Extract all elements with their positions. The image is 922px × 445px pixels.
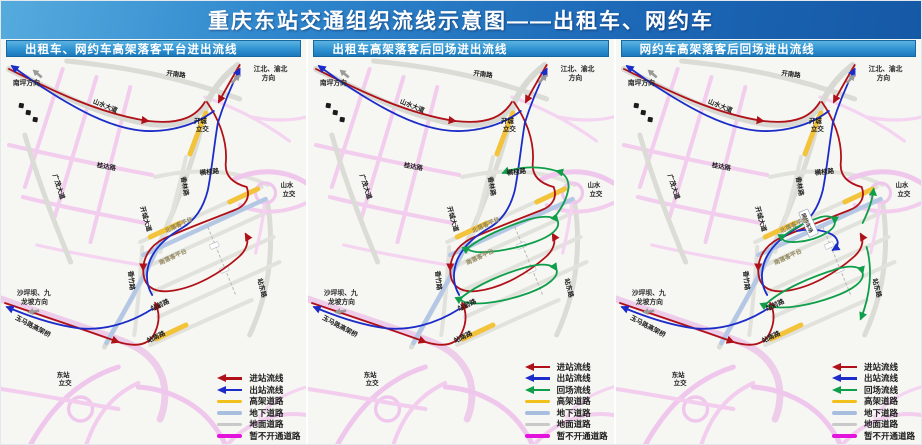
legend-label: 进站流线 (864, 362, 898, 372)
legend-label: 出站流线 (557, 373, 591, 383)
panel-2-title: 出租车高架落客后回场进出流线 (314, 41, 507, 57)
legend-item-outbound: 出站流线 (216, 385, 300, 396)
legend-label: 进站流线 (557, 362, 591, 372)
return-arrow-swatch (831, 385, 859, 394)
legend-item-return: 回场流线 (831, 385, 915, 396)
ground-road-swatch (216, 420, 244, 429)
ground-road-swatch (831, 420, 859, 429)
closed-road-swatch (524, 431, 552, 440)
legend-label: 进站流线 (249, 373, 283, 383)
legend-item-closed: 暂不开通道路 (216, 431, 300, 442)
legend-item-inbound: 进站流线 (524, 362, 608, 373)
underground-road-swatch (524, 408, 552, 417)
panel-taxi-return: 出租车高架落客后回场进出流线 (308, 39, 613, 444)
underground-road-swatch (216, 408, 244, 417)
legend-panel-3: 进站流线 出站流线 回场流线 高架道路 地下道路 (831, 362, 915, 442)
legend-item-ground: 地面道路 (216, 419, 300, 430)
legend-label: 回场流线 (864, 385, 898, 395)
closed-road-swatch (831, 431, 859, 440)
closed-road-swatch (216, 431, 244, 440)
underground-road-swatch (831, 408, 859, 417)
legend-label: 地面道路 (557, 419, 591, 429)
legend-item-outbound: 出站流线 (831, 373, 915, 384)
legend-item-elevated: 高架道路 (216, 396, 300, 407)
legend-label: 暂不开通道路 (557, 431, 608, 441)
inbound-arrow-swatch (216, 374, 244, 383)
panels-row: 出租车、网约车高架落客平台进出流线 (1, 39, 921, 444)
panel-2-header: 出租车高架落客后回场进出流线 (313, 40, 608, 57)
panel-dropoff: 出租车、网约车高架落客平台进出流线 (1, 39, 306, 444)
legend-item-closed: 暂不开通道路 (831, 431, 915, 442)
page: 重庆东站交通组织流线示意图——出租车、网约车 出租车、网约车高架落客平台进出流线 (0, 0, 922, 445)
legend-item-closed: 暂不开通道路 (524, 431, 608, 442)
legend-label: 出站流线 (864, 373, 898, 383)
page-title: 重庆东站交通组织流线示意图——出租车、网约车 (208, 5, 714, 35)
legend-item-elevated: 高架道路 (524, 396, 608, 407)
outbound-arrow-swatch (216, 385, 244, 394)
legend-label: 地下道路 (557, 408, 591, 418)
panel-1-title: 出租车、网约车高架落客平台进出流线 (7, 41, 238, 57)
legend-label: 暂不开通道路 (249, 431, 300, 441)
legend-label: 地下道路 (249, 408, 283, 418)
outbound-arrow-swatch (831, 374, 859, 383)
inbound-arrow-swatch (524, 362, 552, 371)
elevated-road-swatch (524, 397, 552, 406)
legend-item-elevated: 高架道路 (831, 396, 915, 407)
legend-item-underground: 地下道路 (524, 408, 608, 419)
legend-label: 暂不开通道路 (864, 431, 915, 441)
panel-1-header: 出租车、网约车高架落客平台进出流线 (6, 40, 301, 57)
inbound-arrow-swatch (831, 362, 859, 371)
legend-panel-1: 进站流线 出站流线 高架道路 地下道路 地面道路 (216, 373, 300, 441)
legend-label: 高架道路 (557, 396, 591, 406)
legend-item-return: 回场流线 (524, 385, 608, 396)
legend-label: 出站流线 (249, 385, 283, 395)
legend-item-inbound: 进站流线 (216, 373, 300, 384)
elevated-road-swatch (216, 397, 244, 406)
legend-item-underground: 地下道路 (831, 408, 915, 419)
legend-label: 回场流线 (557, 385, 591, 395)
ground-road-swatch (524, 420, 552, 429)
legend-item-outbound: 出站流线 (524, 373, 608, 384)
legend-item-ground: 地面道路 (524, 419, 608, 430)
panel-3-title: 网约车高架落客后回场进出流线 (622, 41, 815, 57)
legend-panel-2: 进站流线 出站流线 回场流线 高架道路 地下道路 (524, 362, 608, 442)
legend-item-underground: 地下道路 (216, 408, 300, 419)
legend-item-inbound: 进站流线 (831, 362, 915, 373)
panel-ridehail-return: 网约车高架落客后回场进出流线 (616, 39, 921, 444)
legend-item-ground: 地面道路 (831, 419, 915, 430)
return-arrow-swatch (524, 385, 552, 394)
legend-label: 地面道路 (864, 419, 898, 429)
panel-3-header: 网约车高架落客后回场进出流线 (621, 40, 916, 57)
outbound-arrow-swatch (524, 374, 552, 383)
legend-label: 地下道路 (864, 408, 898, 418)
legend-label: 高架道路 (249, 396, 283, 406)
title-bar: 重庆东站交通组织流线示意图——出租车、网约车 (1, 1, 921, 39)
legend-label: 高架道路 (864, 396, 898, 406)
elevated-road-swatch (831, 397, 859, 406)
legend-label: 地面道路 (249, 419, 283, 429)
